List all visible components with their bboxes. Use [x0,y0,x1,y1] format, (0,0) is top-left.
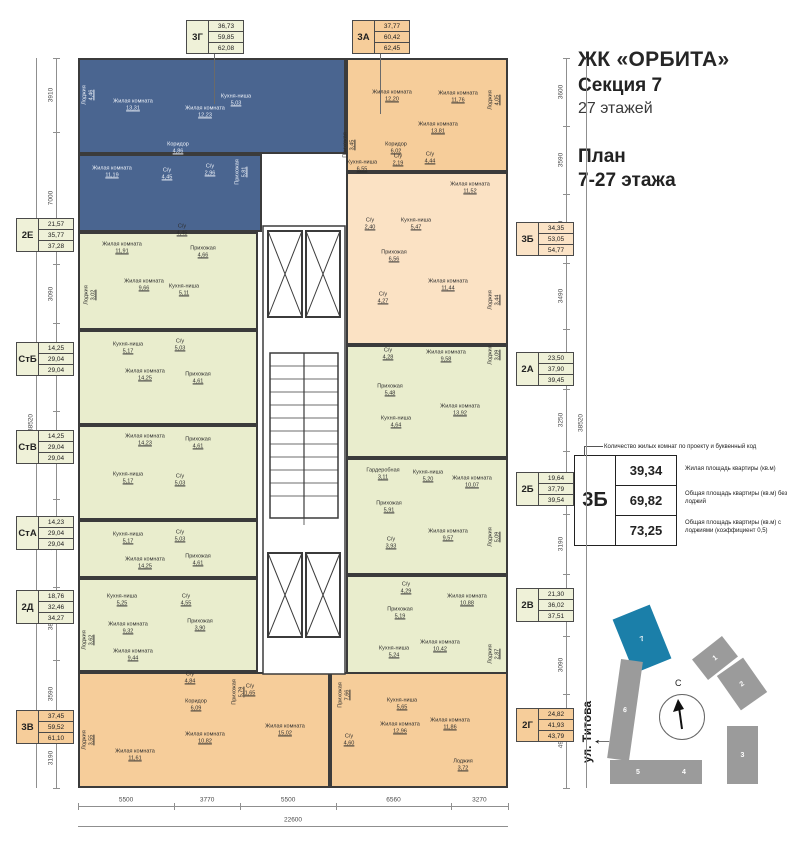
room-name: С/у [379,291,387,298]
room-label: Жилая комната13,92 [440,403,480,416]
room-name: Жилая комната [380,721,420,728]
room-area: 4,05 [494,95,501,106]
apartment-area-total-loggia: 29,04 [39,539,73,549]
room-name: С/у [176,473,184,480]
room-area: 14,23 [138,440,152,447]
room-label: Жилая комната15,02 [265,723,305,736]
room-label: Жилая комната11,76 [438,90,478,103]
room-name: Лоджия [487,527,494,547]
room-name: Лоджия [487,644,494,664]
apartment-area-total-loggia: 29,04 [39,453,73,463]
apartment-area-total-loggia: 37,51 [539,611,573,621]
room-label: Жилая комната10,82 [185,731,225,744]
apartment-area-living: 37,45 [39,711,73,722]
room-area: 5,47 [411,224,422,231]
dimension-line [566,58,567,788]
room-label: Жилая комната11,91 [102,241,142,254]
dimension-label: 3270 [472,797,486,804]
room-name: Жилая комната [102,241,142,248]
room-area: 3,72 [458,765,469,772]
room-name: Кухня-ниша [169,283,199,290]
room-label: Жилая комната14,25 [125,368,165,381]
street-arrow-icon: ← [590,731,614,747]
room-area: 5,09 [494,532,501,543]
dimension-tick [563,788,570,789]
room-label: Кухня-ниша5,24 [379,645,409,658]
room-name: С/у [176,529,184,536]
room-area: 11,91 [115,248,128,255]
apartment-area-total: 59,52 [39,722,73,733]
apartment-code: 3Б [517,223,539,255]
room-name: Коридор [167,141,189,148]
dimension-label: 3090 [48,286,55,300]
complex-title: ЖК «ОРБИТА» [578,48,796,72]
room-name: Лоджия [81,85,88,105]
room-label: Лоджия4,46 [81,85,94,105]
room-label: Коридор6,09 [185,698,207,711]
dimension-total: 38520 [578,414,585,432]
room-area: 5,65 [397,704,408,711]
dimension-label: 3590 [48,686,55,700]
room-area: 4,64 [391,422,402,429]
room-name: Лоджия [453,758,473,765]
dimension-total: 22600 [284,817,302,824]
stairs-elevator-core [262,225,346,675]
room-name: Жилая комната [418,121,458,128]
room-name: Кухня-ниша [113,531,143,538]
room-area: 4,61 [193,560,204,567]
room-label: Жилая комната13,31 [113,98,153,111]
room-area: 5,17 [123,348,134,355]
room-name: С/у [176,338,184,345]
room-area: 4,29 [401,588,412,595]
dimension-tick [240,803,241,810]
dimension-tick [563,389,570,390]
room-name: Кухня-ниша [381,415,411,422]
room-label: Лоджия3,72 [453,758,473,771]
room-label: Прихожая4,61 [185,553,211,566]
dimension-tick [563,694,570,695]
room-label: Жилая комната9,57 [428,528,468,541]
dimension-tick [563,329,570,330]
room-name: Лоджия [81,730,88,750]
room-area: 3,11 [378,474,388,481]
room-area: 12,23 [198,112,212,119]
apartment-sta[interactable] [78,520,258,578]
room-name: Прихожая [185,553,211,560]
room-area: 4,61 [193,378,204,385]
room-area: 11,76 [451,97,464,104]
apartment-tag-stb[interactable]: СтБ14,2529,0429,04 [16,342,74,376]
room-name: Прихожая [337,682,344,708]
room-label: С/у1,65 [245,683,256,696]
room-area: 12,20 [385,96,399,103]
north-label: С [675,678,682,688]
room-area: 5,03 [231,100,242,107]
room-name: С/у [402,581,410,588]
title-block: ЖК «ОРБИТА» Секция 7 27 этажей План 7-27… [578,48,796,192]
dimension-label: 5500 [281,797,295,804]
room-area: 4,27 [378,298,389,305]
room-area: 3,02 [90,290,97,301]
room-label: Прихожая6,56 [381,249,407,262]
room-area: 10,88 [460,600,474,607]
room-label: Прихожая4,66 [190,245,216,258]
room-name: Прихожая [381,249,407,256]
apartment-code: СтБ [17,343,39,375]
room-label: Жилая комната9,32 [108,621,148,634]
room-area: 5,48 [385,390,396,397]
dimension-tick [563,636,570,637]
room-area: 9,66 [139,285,150,292]
room-label: С/у4,60 [344,733,355,746]
legend-total-loggia-area: 73,25 [616,516,676,545]
room-name: Кухня-ниша [379,645,409,652]
room-name: Прихожая [387,606,413,613]
legend-sample-code: 3Б [575,456,615,545]
room-label: С/у2,96 [205,163,216,176]
apartment-area-total: 41,93 [539,720,573,731]
room-label: С/у4,84 [185,671,196,684]
room-name: Жилая комната [125,556,165,563]
apartment-tag-3a[interactable]: 3А37,7760,4262,45 [352,20,410,54]
room-area: 11,86 [443,724,456,731]
legend-total-loggia-desc: Общая площадь квартиры (кв.м) с лоджиями… [685,513,793,542]
apartment-area-total-loggia: 61,10 [39,733,73,743]
room-label: Жилая комната11,52 [450,181,490,194]
room-area: 5,03 [175,480,186,487]
apartment-area-total-loggia: 37,28 [39,241,73,251]
room-label: Коридор4,86 [167,141,189,154]
room-area: 10,82 [198,738,212,745]
plan-label: План [578,146,796,168]
room-name: Жилая комната [420,639,460,646]
room-label: Лоджия3,09 [487,345,500,365]
room-label: С/у5,03 [175,338,186,351]
room-area: 11,61 [128,755,141,762]
room-label: Кухня-ниша5,25 [107,593,137,606]
room-label: С/у4,28 [383,347,394,360]
room-name: Жилая комната [430,717,470,724]
room-label: Прихожая3,90 [187,618,213,631]
apartment-area-total: 29,04 [39,528,73,539]
apartment-area-living: 24,82 [539,709,573,720]
room-label: Прихожая5,19 [387,606,413,619]
room-label: С/у4,55 [181,593,192,606]
dimension-line [78,806,508,807]
apartment-area-total: 37,90 [539,364,573,375]
site-building-4[interactable]: 4 [666,760,702,784]
room-area: 5,17 [123,538,134,545]
room-area: 5,11 [179,290,189,297]
dimension-tick [53,132,60,133]
site-building-3[interactable]: 3 [727,726,758,784]
room-name: Жилая комната [447,593,487,600]
room-label: Лоджия4,05 [487,90,500,110]
room-name: Кухня-ниша [113,341,143,348]
room-area: 3,09 [494,350,501,361]
room-area: 5,03 [175,536,186,543]
room-label: С/у2,40 [365,217,376,230]
room-name: Прихожая [231,679,238,705]
compass-icon [659,694,705,740]
room-area: 13,81 [431,128,445,135]
room-name: Кухня-ниша [347,159,377,166]
room-area: 3,62 [88,635,95,646]
room-area: 15,02 [278,730,292,737]
apartment-area-total-loggia: 62,45 [375,43,409,53]
legend-note: Количество жилых комнат по проекту и бук… [604,444,789,450]
apartment-tag-2a[interactable]: 2А23,5037,9039,45 [516,352,574,386]
room-label: Прихожая4,61 [185,371,211,384]
room-area: 6,56 [389,256,400,263]
apartment-area-total-loggia: 54,77 [539,245,573,255]
room-area: 4,28 [383,354,394,361]
room-name: Жилая комната [124,278,164,285]
room-name: Жилая комната [428,278,468,285]
room-label: Жилая комната10,42 [420,639,460,652]
room-area: 12,96 [393,728,407,735]
apartment-tag-3b[interactable]: 3Б34,3553,0554,77 [516,222,574,256]
room-label: Прихожая4,61 [185,436,211,449]
dimension-tick [53,499,60,500]
apartment-code: 3В [17,711,39,743]
dimension-tick [508,803,509,810]
dimension-label: 3090 [558,658,565,672]
room-name: Лоджия [487,345,494,365]
room-label: Прихожая5,48 [377,383,403,396]
room-name: Жилая комната [428,528,468,535]
room-label: Жилая комната11,44 [428,278,468,291]
room-area: 4,44 [425,158,436,165]
room-name: Прихожая [190,245,216,252]
dimension-line [78,826,508,827]
legend: Количество жилых комнат по проекту и бук… [574,444,798,546]
room-label: Кухня-ниша5,65 [387,697,417,710]
dimension-line [56,58,57,788]
dimension-tick [78,803,79,810]
room-label: Жилая комната12,96 [380,721,420,734]
apartment-area-total-loggia: 62,08 [209,43,243,53]
room-label: Прихожая5,81 [234,159,247,185]
room-area: 3,93 [386,543,397,550]
apartment-stb[interactable] [78,330,258,425]
room-label: С/у4,45 [162,167,173,180]
room-label: С/у5,03 [175,473,186,486]
room-area: 6,09 [191,705,202,712]
room-name: Кухня-ниша [387,697,417,704]
room-label: С/у4,45 [177,223,188,236]
room-area: 5,03 [175,345,186,352]
room-label: Кухня-ниша4,64 [381,415,411,428]
room-label: Кухня-ниша6,55 [347,159,377,172]
room-area: 4,66 [198,252,209,259]
apartment-code: 2В [517,589,539,621]
room-area: 4,45 [162,174,173,181]
room-name: С/у [182,593,190,600]
apartment-area-living: 18,76 [39,591,73,602]
apartment-code: 3А [353,21,375,53]
apartment-area-living: 19,64 [539,473,573,484]
apartment-tag-2b[interactable]: 2Б19,6437,7939,54 [516,472,574,506]
room-label: Жилая комната9,58 [426,349,466,362]
apartment-tag-2d[interactable]: 2Д18,7632,4634,27 [16,590,74,624]
apartment-code: 3Г [187,21,209,53]
room-area: 13,92 [453,410,467,417]
apartment-3b[interactable] [346,172,508,345]
room-name: Жилая комната [125,433,165,440]
room-name: Прихожая [185,371,211,378]
room-name: Жилая комната [115,748,155,755]
room-label: С/у4,27 [378,291,389,304]
room-name: Кухня-ниша [401,217,431,224]
room-area: 3,45 [349,140,356,151]
room-label: Кухня-ниша5,17 [113,471,143,484]
apartment-tag-2e[interactable]: 2Е21,5735,7737,28 [16,218,74,252]
room-label: Прихожая5,91 [376,500,402,513]
apartment-area-total: 60,42 [375,32,409,43]
room-name: С/у [206,163,214,170]
room-name: Прихожая [342,132,349,158]
apartment-tag-2v[interactable]: 2В21,3036,0237,51 [516,588,574,622]
room-name: С/у [186,671,194,678]
room-area: 5,79 [238,687,245,698]
apartment-area-total: 59,85 [209,32,243,43]
dimension-tick [53,660,60,661]
room-label: Лоджия2,87 [487,644,500,664]
room-area: 10,07 [465,482,479,489]
apartment-area-total-loggia: 43,79 [539,731,573,741]
room-label: Лоджия3,02 [83,285,96,305]
room-label: Прихожая3,45 [342,132,355,158]
apartment-area-living: 14,25 [39,343,73,354]
dimension-tick [563,263,570,264]
dimension-label: 3490 [558,289,565,303]
room-name: Жилая комната [185,731,225,738]
room-label: Кухня-ниша5,17 [113,341,143,354]
dimension-label: 3600 [558,85,565,99]
room-name: Жилая комната [92,165,132,172]
room-name: Прихожая [377,383,403,390]
apartment-tag-2g[interactable]: 2Г24,8241,9343,79 [516,708,574,742]
room-area: 5,91 [384,507,395,514]
room-name: С/у [366,217,374,224]
dimension-label: 3910 [48,88,55,102]
apartment-tag-3v[interactable]: 3В37,4559,5261,10 [16,710,74,744]
room-name: Коридор [385,141,407,148]
room-name: С/у [163,167,171,174]
dimension-line [36,58,37,788]
apartment-tag-stv[interactable]: СтВ14,2529,0429,04 [16,430,74,464]
room-name: С/у [426,151,434,158]
apartment-area-total: 32,46 [39,602,73,613]
dimension-tick [336,803,337,810]
room-label: Жилая комната11,61 [115,748,155,761]
apartment-code: 2Д [17,591,39,623]
site-building-5[interactable]: 5 [610,760,666,784]
room-area: 9,32 [123,628,134,635]
apartment-area-total-loggia: 39,45 [539,375,573,385]
room-area: 2,19 [393,160,404,167]
room-label: Жилая комната9,66 [124,278,164,291]
room-label: Прихожая5,79 [231,679,244,705]
room-name: Лоджия [487,90,494,110]
apartment-code: 2Г [517,709,539,741]
room-name: Прихожая [376,500,402,507]
apartment-2d[interactable] [78,578,258,672]
apartment-code: 2А [517,353,539,385]
room-label: Кухня-ниша5,11 [169,283,199,296]
apartment-area-total-loggia: 39,54 [539,495,573,505]
room-label: Лоджия3,44 [487,290,500,310]
room-name: Коридор [185,698,207,705]
room-label: Гардеробная3,11 [366,467,399,480]
room-label: С/у2,19 [393,153,404,166]
room-name: Жилая комната [450,181,490,188]
room-label: Кухня-ниша5,20 [413,469,443,482]
room-name: Жилая комната [452,475,492,482]
room-name: С/у [178,223,186,230]
dimension-label: 5500 [119,797,133,804]
apartment-area-total: 29,04 [39,354,73,365]
room-name: Прихожая [234,159,241,185]
room-area: 9,57 [443,535,454,542]
dimension-label: 3190 [558,537,565,551]
apartment-area-living: 37,77 [375,21,409,32]
room-area: 4,84 [185,678,196,685]
room-area: 11,44 [441,285,454,292]
room-label: С/у4,29 [401,581,412,594]
apartment-stv[interactable] [78,425,258,520]
apartment-tag-3g[interactable]: 3Г36,7359,8562,08 [186,20,244,54]
room-label: С/у3,93 [386,536,397,549]
room-name: С/у [384,347,392,354]
room-label: Жилая комната13,81 [418,121,458,134]
room-area: 4,46 [88,90,95,101]
room-area: 5,81 [241,167,248,178]
apartment-tag-sta[interactable]: СтА14,2329,0429,04 [16,516,74,550]
room-name: Жилая комната [265,723,305,730]
apartment-code: СтА [17,517,39,549]
room-area: 6,55 [357,166,368,173]
room-area: 11,52 [463,188,476,195]
dimension-line [586,58,587,788]
dimension-tick [563,126,570,127]
room-name: Жилая комната [125,368,165,375]
apartment-code: 2Е [17,219,39,251]
apartment-area-total: 37,79 [539,484,573,495]
apartment-area-living: 21,57 [39,219,73,230]
floorplan-page: 3Г36,7359,8562,08Лоджия4,46Жилая комната… [0,0,800,856]
apartment-area-living: 23,50 [539,353,573,364]
apartment-area-living: 21,30 [539,589,573,600]
apartment-area-total: 29,04 [39,442,73,453]
dimension-tick [563,58,570,59]
apartment-area-living: 34,35 [539,223,573,234]
floors-count: 27 этажей [578,100,796,118]
dimension-tick [563,194,570,195]
room-area: 4,55 [181,600,192,607]
apartment-2v[interactable] [346,575,508,682]
room-label: Жилая комната11,86 [430,717,470,730]
legend-total-desc: Общая площадь квартиры (кв.м) без лоджий [685,484,793,513]
dimension-tick [53,264,60,265]
room-label: Жилая комната14,23 [125,433,165,446]
room-area: 2,87 [494,649,501,660]
room-label: Кухня-ниша5,17 [113,531,143,544]
room-label: Кухня-ниша5,47 [401,217,431,230]
plan-floors: 7-27 этажа [578,170,796,192]
